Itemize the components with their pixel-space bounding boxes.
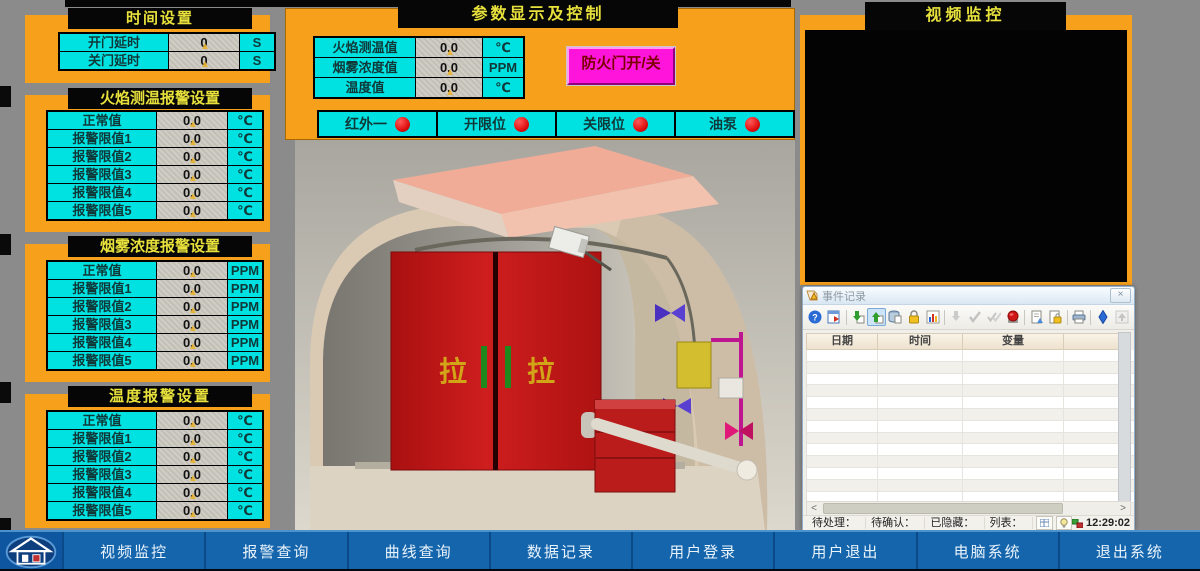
indicator-lamp-icon xyxy=(633,117,648,132)
horizontal-scrollbar[interactable]: < > xyxy=(806,501,1131,516)
video-feed xyxy=(805,30,1127,282)
scroll-right-icon[interactable]: > xyxy=(1116,503,1130,514)
value-field[interactable]: 0.0 xyxy=(157,184,227,201)
indicator-lamp-icon xyxy=(395,117,410,132)
param-label: 温度值 xyxy=(315,78,415,97)
unit-label: ℃ xyxy=(228,112,262,129)
nav-computer-system[interactable]: 电脑系统 xyxy=(918,532,1060,571)
unit-label: ℃ xyxy=(483,78,523,97)
schedule-icon[interactable] xyxy=(825,308,844,326)
param-value: 0.0 xyxy=(416,58,482,77)
unit-label: ℃ xyxy=(228,412,262,429)
value-field[interactable]: 0.0 xyxy=(157,166,227,183)
unit-label: ℃ xyxy=(228,430,262,447)
value-field[interactable]: 0.0 xyxy=(157,412,227,429)
unit-label: ℃ xyxy=(483,38,523,57)
unit-label: ℃ xyxy=(228,148,262,165)
nav-exit-system[interactable]: 退出系统 xyxy=(1060,532,1200,571)
value-field[interactable]: 0.0 xyxy=(157,148,227,165)
time-settings-title: 时间设置 xyxy=(68,8,252,29)
video-monitor-title: 视频监控 xyxy=(865,2,1066,30)
event-table-row xyxy=(807,444,1134,456)
confirm-all-icon[interactable] xyxy=(985,308,1004,326)
pending-count: 待处理：0 xyxy=(807,517,866,529)
bottom-navbar: 视频监控 报警查询 曲线查询 数据记录 用户登录 用户退出 电脑系统 退出系统 xyxy=(0,530,1200,571)
event-toolbar: ? xyxy=(803,305,1134,330)
scrollbar-thumb[interactable] xyxy=(823,503,1063,514)
row-label: 关门延时 xyxy=(60,52,168,69)
parameter-control-title: 参数显示及控制 xyxy=(398,2,678,28)
help-icon[interactable]: ? xyxy=(806,308,825,326)
param-label: 火焰测温值 xyxy=(315,38,415,57)
scroll-top-icon[interactable] xyxy=(1112,308,1131,326)
export-icon[interactable] xyxy=(848,308,867,326)
unit-label: ℃ xyxy=(228,184,262,201)
chart-icon[interactable] xyxy=(924,308,943,326)
edge-tab xyxy=(0,518,11,530)
row-label: 报警限值5 xyxy=(48,502,156,519)
fire-door-toggle-button[interactable]: 防火门开/关 xyxy=(567,47,675,85)
home-icon xyxy=(3,534,59,570)
column-header-time[interactable]: 时间 xyxy=(878,333,963,350)
unit-label: ℃ xyxy=(228,502,262,519)
value-field[interactable]: 0.0 xyxy=(157,130,227,147)
value-field[interactable]: 0.0 xyxy=(157,352,227,369)
value-field[interactable]: 0.0 xyxy=(157,466,227,483)
column-header-date[interactable]: 日期 xyxy=(806,333,878,350)
unit-label: PPM xyxy=(483,58,523,77)
unit-label: S xyxy=(240,52,274,69)
event-statusbar: 待处理：0 待确认：0 已隐藏：0 列表：0 12:29:02 xyxy=(803,515,1134,530)
temperature-alarm-table: 正常值0.0℃ 报警限值10.0℃ 报警限值20.0℃ 报警限值30.0℃ 报警… xyxy=(46,410,264,521)
hmi-screen: 时间设置 开门延时 0 S 关门延时 0 S 火焰测温报警设置 正常值0.0℃ … xyxy=(0,0,1200,571)
row-label: 报警限值2 xyxy=(48,448,156,465)
unit-label: ℃ xyxy=(228,166,262,183)
value-field[interactable]: 0.0 xyxy=(157,316,227,333)
table-row: 关门延时 0 S xyxy=(60,52,274,69)
nav-video-monitor[interactable]: 视频监控 xyxy=(64,532,206,571)
param-value: 0.0 xyxy=(416,78,482,97)
value-field[interactable]: 0 xyxy=(169,34,239,51)
network-status-icon xyxy=(1072,519,1083,528)
unit-label: S xyxy=(240,34,274,51)
bulb-icon[interactable] xyxy=(1056,516,1072,530)
indicator-row: 红外一 开限位 关限位 油泵 xyxy=(317,110,795,138)
home-button[interactable] xyxy=(0,532,64,571)
row-label: 报警限值3 xyxy=(48,316,156,333)
unit-label: PPM xyxy=(228,280,262,297)
row-label: 报警限值4 xyxy=(48,334,156,351)
parameter-table: 火焰测温值0.0℃ 烟雾浓度值0.0PPM 温度值0.0℃ xyxy=(313,36,525,99)
lock-icon[interactable] xyxy=(905,308,924,326)
unit-label: PPM xyxy=(228,352,262,369)
param-value: 0.0 xyxy=(416,38,482,57)
row-label: 报警限值4 xyxy=(48,184,156,201)
unit-label: ℃ xyxy=(228,130,262,147)
param-label: 烟雾浓度值 xyxy=(315,58,415,77)
value-field[interactable]: 0.0 xyxy=(157,202,227,219)
value-field[interactable]: 0.0 xyxy=(157,280,227,297)
door-pull-label-right: 拉 xyxy=(527,355,555,387)
tunnel-scene: 拉 拉 xyxy=(295,140,795,530)
event-table-row xyxy=(807,468,1134,480)
acknowledge-icon[interactable] xyxy=(947,308,966,326)
column-header-extra[interactable] xyxy=(1064,333,1124,350)
close-icon[interactable]: × xyxy=(1110,288,1131,303)
confirm-icon[interactable] xyxy=(966,308,985,326)
event-table-row xyxy=(807,385,1134,397)
tunnel-floor xyxy=(310,466,765,530)
row-label: 报警限值3 xyxy=(48,466,156,483)
import-icon[interactable] xyxy=(867,308,886,326)
door-handle xyxy=(481,346,487,388)
svg-text:?: ? xyxy=(813,313,819,323)
print-icon[interactable] xyxy=(1070,308,1089,326)
database-icon[interactable] xyxy=(886,308,905,326)
event-log-icon xyxy=(806,290,818,301)
row-label: 报警限值3 xyxy=(48,166,156,183)
column-header-variable[interactable]: 变量 xyxy=(963,333,1064,350)
unit-label: ℃ xyxy=(228,448,262,465)
unit-label: ℃ xyxy=(228,484,262,501)
indicator-oil-pump: 油泵 xyxy=(676,112,793,136)
event-table-body xyxy=(806,350,1134,503)
indicator-lamp-icon xyxy=(745,117,760,132)
unit-label: PPM xyxy=(228,298,262,315)
row-label: 报警限值5 xyxy=(48,202,156,219)
door-pull-label-left: 拉 xyxy=(439,355,467,387)
junction-box xyxy=(677,342,711,388)
table-view-icon[interactable] xyxy=(1036,516,1052,530)
confirmed-count: 待确认：0 xyxy=(866,517,925,529)
event-window-title: 事件记录 xyxy=(822,288,1110,304)
scroll-left-icon[interactable]: < xyxy=(807,503,821,514)
value-field[interactable]: 0.0 xyxy=(157,484,227,501)
event-window-titlebar[interactable]: 事件记录 × xyxy=(803,287,1134,305)
event-table-row xyxy=(807,362,1134,374)
unit-label: PPM xyxy=(228,262,262,279)
door-handle xyxy=(505,346,511,388)
indicator-infrared: 红外一 xyxy=(319,112,436,136)
row-label: 报警限值2 xyxy=(48,298,156,315)
value-field[interactable]: 0.0 xyxy=(157,334,227,351)
value-field[interactable]: 0.0 xyxy=(157,430,227,447)
row-label: 报警限值4 xyxy=(48,484,156,501)
flame-alarm-title: 火焰测温报警设置 xyxy=(68,88,252,109)
row-label: 正常值 xyxy=(48,112,156,129)
event-table-row xyxy=(807,480,1134,492)
row-label: 报警限值5 xyxy=(48,352,156,369)
edge-tab xyxy=(0,382,11,403)
flame-alarm-table: 正常值0.0℃ 报警限值10.0℃ 报警限值20.0℃ 报警限值30.0℃ 报警… xyxy=(46,110,264,221)
value-field[interactable]: 0.0 xyxy=(157,298,227,315)
nav-user-logout[interactable]: 用户退出 xyxy=(775,532,917,571)
secure-report-icon[interactable] xyxy=(1046,308,1065,326)
unit-label: ℃ xyxy=(228,202,262,219)
report-icon[interactable] xyxy=(1027,308,1046,326)
unit-label: PPM xyxy=(228,316,262,333)
event-table-row xyxy=(807,409,1134,421)
nav-data-record[interactable]: 数据记录 xyxy=(491,532,633,571)
event-table-row xyxy=(807,397,1134,409)
unit-label: ℃ xyxy=(228,466,262,483)
smoke-alarm-title: 烟雾浓度报警设置 xyxy=(68,236,252,257)
indicator-open-limit: 开限位 xyxy=(438,112,555,136)
emergency-stop-icon[interactable] xyxy=(1004,308,1023,326)
row-label: 正常值 xyxy=(48,412,156,429)
value-field[interactable]: 0.0 xyxy=(157,262,227,279)
event-record-window: 事件记录 × ? 日期 时间 xyxy=(802,286,1135,530)
temperature-alarm-title: 温度报警设置 xyxy=(68,386,252,407)
nav-curve-query[interactable]: 曲线查询 xyxy=(349,532,491,571)
smoke-alarm-table: 正常值0.0PPM 报警限值10.0PPM 报警限值20.0PPM 报警限值30… xyxy=(46,260,264,371)
table-row: 开门延时 0 S xyxy=(60,34,274,51)
event-clock: 12:29:02 xyxy=(1086,517,1130,529)
row-label: 正常值 xyxy=(48,262,156,279)
event-table-header: 日期 时间 变量 xyxy=(806,333,1134,350)
event-table-row xyxy=(807,374,1134,386)
value-field[interactable]: 0.0 xyxy=(157,112,227,129)
nav-user-login[interactable]: 用户登录 xyxy=(633,532,775,571)
video-monitor-panel xyxy=(800,15,1132,285)
value-field[interactable]: 0.0 xyxy=(157,448,227,465)
value-field[interactable]: 0 xyxy=(169,52,239,69)
indicator-lamp-icon xyxy=(514,117,529,132)
edge-tab xyxy=(0,86,11,107)
event-table-row xyxy=(807,350,1134,362)
unit-label: PPM xyxy=(228,334,262,351)
event-table-row xyxy=(807,456,1134,468)
row-label: 报警限值1 xyxy=(48,430,156,447)
row-label: 报警限值1 xyxy=(48,280,156,297)
value-field[interactable]: 0.0 xyxy=(157,502,227,519)
navigate-icon[interactable] xyxy=(1093,308,1112,326)
row-label: 开门延时 xyxy=(60,34,168,51)
event-table-row xyxy=(807,421,1134,433)
event-table-row xyxy=(807,433,1134,445)
row-label: 报警限值1 xyxy=(48,130,156,147)
list-count: 列表：0 xyxy=(985,517,1034,529)
row-label: 报警限值2 xyxy=(48,148,156,165)
edge-tab xyxy=(0,234,11,255)
hidden-count: 已隐藏：0 xyxy=(925,517,984,529)
indicator-close-limit: 关限位 xyxy=(557,112,674,136)
nav-alarm-query[interactable]: 报警查询 xyxy=(206,532,348,571)
time-settings-table: 开门延时 0 S 关门延时 0 S xyxy=(58,32,276,71)
vertical-scrollbar[interactable] xyxy=(1118,332,1131,503)
